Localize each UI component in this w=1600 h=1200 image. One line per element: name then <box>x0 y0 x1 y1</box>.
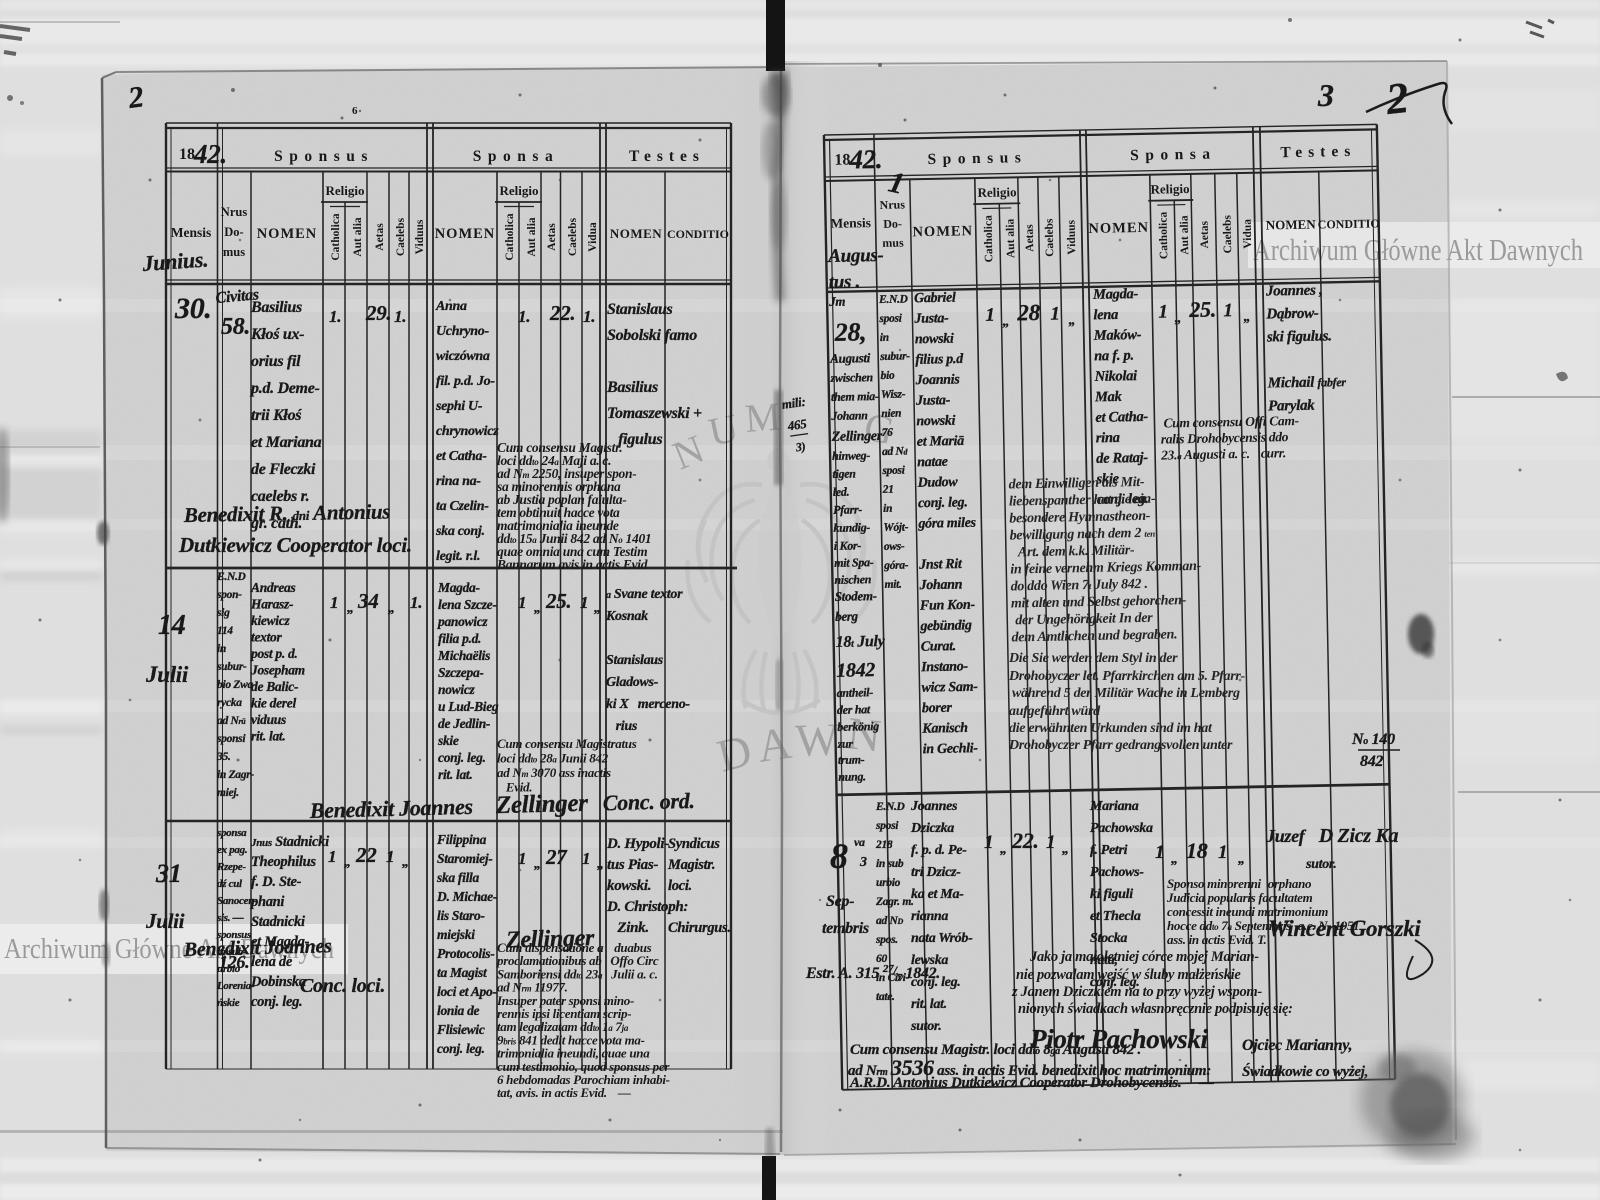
svg-text:in Gechli-: in Gechli- <box>923 741 979 757</box>
svg-text:ki X merceno-: ki X merceno- <box>606 697 690 712</box>
svg-text:bio: bio <box>880 370 895 382</box>
svg-text:rit. lat.: rit. lat. <box>438 767 472 782</box>
svg-text:Catholica: Catholica <box>504 213 516 261</box>
svg-text:„: „ <box>594 601 601 616</box>
svg-text:Sponsus: Sponsus <box>274 148 374 165</box>
svg-text:Maków-: Maków- <box>1093 327 1142 344</box>
svg-text:legit. r.l.: legit. r.l. <box>436 549 480 564</box>
svg-text:nata Wrób-: nata Wrób- <box>911 931 973 946</box>
svg-text:1: 1 <box>1046 832 1055 853</box>
svg-text:ta Czelin-: ta Czelin- <box>436 499 489 514</box>
svg-text:Julii: Julii <box>145 662 189 687</box>
svg-text:Benedixit R. dni Antonius: Benedixit R. dni Antonius <box>183 499 391 527</box>
svg-text:„: „ <box>347 601 354 616</box>
svg-text:Caelebs: Caelebs <box>395 217 407 256</box>
svg-text:Sponsa: Sponsa <box>1130 145 1217 164</box>
svg-text:them mia-: them mia- <box>831 389 879 404</box>
svg-text:1: 1 <box>386 847 394 866</box>
svg-text:Michaëlis: Michaëlis <box>437 648 490 663</box>
svg-text:Stadnicki: Stadnicki <box>251 914 305 930</box>
svg-text:Rzepe-: Rzepe- <box>216 861 246 873</box>
svg-text:Parylak: Parylak <box>1268 398 1315 415</box>
svg-text:Basilius: Basilius <box>606 379 658 396</box>
svg-text:ows-: ows- <box>884 541 905 553</box>
svg-text:borer: borer <box>922 701 953 717</box>
svg-text:Anna: Anna <box>435 299 467 314</box>
svg-text:Ojciec Marianny,: Ojciec Marianny, <box>1242 1037 1352 1054</box>
svg-text:Flisiewic: Flisiewic <box>436 1022 485 1037</box>
svg-text:22: 22 <box>355 843 377 867</box>
svg-text:gebündig: gebündig <box>919 618 972 634</box>
svg-text:Jm: Jm <box>828 294 845 309</box>
svg-text:tembris: tembris <box>822 920 869 937</box>
svg-text:Aetas: Aetas <box>1199 220 1212 248</box>
svg-text:22.: 22. <box>1011 828 1039 853</box>
svg-text:Sponsa: Sponsa <box>473 148 559 165</box>
svg-text:et Mariā: et Mariā <box>917 434 965 450</box>
svg-text:sis. —: sis. — <box>216 912 244 924</box>
svg-text:i Kor-: i Kor- <box>834 538 862 553</box>
svg-text:Basilius: Basilius <box>250 299 302 316</box>
svg-text:„: „ <box>1174 311 1181 326</box>
svg-text:skie: skie <box>437 733 459 748</box>
svg-text:hinweg-: hinweg- <box>832 448 870 463</box>
svg-text:NOMEN: NOMEN <box>1266 217 1317 233</box>
svg-text:Mensis: Mensis <box>171 225 212 240</box>
svg-text:Sponsus: Sponsus <box>927 149 1027 168</box>
svg-text:NOMEN: NOMEN <box>1088 220 1149 237</box>
svg-text:28: 28 <box>1016 300 1041 325</box>
svg-text:Curat.: Curat. <box>921 639 956 655</box>
svg-text:lis Staro-: lis Staro- <box>437 908 485 923</box>
svg-text:kundig-: kundig- <box>833 520 870 535</box>
svg-text:18: 18 <box>834 151 850 168</box>
svg-text:Pachows-: Pachows- <box>1090 865 1144 880</box>
svg-text:„: „ <box>1238 852 1245 867</box>
svg-text:18: 18 <box>179 146 195 163</box>
svg-text:wicz Sam-: wicz Sam- <box>921 680 978 696</box>
svg-text:Junius.: Junius. <box>141 246 209 276</box>
svg-text:miejski: miejski <box>437 927 475 942</box>
svg-text:sposi: sposi <box>878 313 902 325</box>
svg-text:sutor.: sutor. <box>1305 857 1337 872</box>
svg-text:sponsa: sponsa <box>216 827 247 839</box>
svg-text:Aetas: Aetas <box>546 223 558 251</box>
svg-text:Dziczka: Dziczka <box>910 821 954 836</box>
svg-text:de Fleczki: de Fleczki <box>251 461 316 478</box>
svg-text:Michail fabfer: Michail fabfer <box>1267 374 1347 392</box>
svg-text:22.: 22. <box>549 301 575 325</box>
svg-text:„: „ <box>402 855 409 870</box>
svg-text:Theophilus: Theophilus <box>251 854 316 870</box>
svg-text:Augusti: Augusti <box>829 350 871 366</box>
svg-text:Kanisch: Kanisch <box>921 721 968 737</box>
svg-text:ńskie: ńskie <box>217 997 240 1009</box>
svg-text:„: „ <box>597 857 604 872</box>
svg-text:Joannes: Joannes <box>910 799 958 814</box>
svg-text:Augus-: Augus- <box>827 245 884 267</box>
svg-text:114: 114 <box>217 625 233 637</box>
svg-text:8: 8 <box>830 836 848 876</box>
svg-text:Drohobyczer let. Pfarrkirchen: Drohobyczer let. Pfarrkirchen am 5. Pfar… <box>1008 669 1246 684</box>
svg-text:Stodem-: Stodem- <box>835 588 877 604</box>
svg-text:ad Nd: ad Nd <box>882 445 909 458</box>
svg-text:lena: lena <box>1093 307 1118 323</box>
svg-text:ralis Drohobycensis ddo: ralis Drohobycensis ddo <box>1161 429 1289 446</box>
svg-text:conj. leg.: conj. leg. <box>437 1041 485 1056</box>
svg-text:ad ND: ad ND <box>876 915 903 927</box>
svg-text:Joannes ,: Joannes , <box>1265 282 1323 299</box>
svg-text:Mensis: Mensis <box>830 215 871 231</box>
svg-text:ska conj.: ska conj. <box>435 524 485 539</box>
svg-text:1: 1 <box>330 593 338 612</box>
svg-text:25.: 25. <box>545 589 571 613</box>
svg-text:nischen: nischen <box>834 572 871 587</box>
svg-text:fil. p.d. Jo-: fil. p.d. Jo- <box>436 374 495 389</box>
svg-text:Harasz-: Harasz- <box>250 597 294 612</box>
svg-text:miej.: miej. <box>217 787 239 799</box>
svg-text:urbio: urbio <box>876 877 901 889</box>
svg-text:Julii: Julii <box>145 909 185 933</box>
svg-text:1.: 1. <box>410 593 422 612</box>
svg-text:Kosnak: Kosnak <box>605 609 648 624</box>
svg-text:Instano-: Instano- <box>920 659 969 675</box>
svg-text:Andreas: Andreas <box>250 580 295 595</box>
svg-text:1.: 1. <box>583 307 595 326</box>
svg-text:CONDITIO: CONDITIO <box>1318 216 1380 231</box>
svg-text:bewilligung nach dem 2 ten: bewilligung nach dem 2 ten <box>1010 526 1156 544</box>
svg-text:Viduus: Viduus <box>414 219 426 254</box>
svg-text:1842: 1842 <box>836 659 876 682</box>
svg-text:1: 1 <box>328 847 336 866</box>
svg-text:in: in <box>217 643 226 655</box>
svg-text:lonia de: lonia de <box>437 1003 480 1018</box>
svg-text:kiewicz: kiewicz <box>251 613 290 628</box>
svg-text:sposi: sposi <box>875 820 899 832</box>
svg-text:mus: mus <box>882 235 904 249</box>
svg-text:Johann: Johann <box>918 577 962 593</box>
svg-text:Do-: Do- <box>883 217 902 231</box>
svg-text:Lorenia-: Lorenia- <box>216 980 255 992</box>
svg-text:textor: textor <box>251 630 282 645</box>
svg-text:Justa-: Justa- <box>913 311 949 327</box>
svg-text:in: in <box>883 503 892 515</box>
svg-text:Tomaszewski +: Tomaszewski + <box>607 405 702 422</box>
svg-text:Testes: Testes <box>629 148 705 165</box>
svg-text:NOMEN: NOMEN <box>610 226 662 241</box>
svg-text:Caelebs: Caelebs <box>567 217 579 256</box>
svg-text:ad Nrū: ad Nrū <box>217 715 246 727</box>
svg-text:u Lud-Bieg: u Lud-Bieg <box>438 699 499 714</box>
svg-text:et Thecla: et Thecla <box>1090 909 1141 924</box>
svg-text:1: 1 <box>1050 304 1060 325</box>
svg-text:na f. p.: na f. p. <box>1094 348 1134 365</box>
svg-text:„: „ <box>1068 313 1075 328</box>
svg-text:1.: 1. <box>518 307 530 326</box>
svg-text:tigen: tigen <box>832 466 856 480</box>
svg-text:Religio: Religio <box>326 183 365 198</box>
svg-text:Nikolai: Nikolai <box>1093 368 1137 385</box>
svg-text:Nrus: Nrus <box>221 205 248 219</box>
svg-text:kie derel: kie derel <box>251 696 296 711</box>
svg-text:E.N.D: E.N.D <box>878 293 909 306</box>
svg-text:25.: 25. <box>1188 297 1216 323</box>
svg-text:Cum consensu Magistratus: Cum consensu Magistratus <box>497 736 637 751</box>
svg-text:der Ungehörigkeit In der: der Ungehörigkeit In der <box>1015 611 1153 629</box>
svg-text:rina na-: rina na- <box>436 474 481 489</box>
svg-text:Wisz-: Wisz- <box>881 388 906 400</box>
svg-text:21: 21 <box>882 484 894 496</box>
svg-text:phani: phani <box>249 894 284 910</box>
svg-text:Sponso minorenni orphano: Sponso minorenni orphano <box>1167 876 1312 891</box>
svg-text:concessit ineundi matrimonium: concessit ineundi matrimonium <box>1167 904 1328 919</box>
svg-text:30.: 30. <box>174 292 212 325</box>
svg-text:sephi U-: sephi U- <box>435 399 483 414</box>
svg-text:zur: zur <box>836 737 853 751</box>
svg-text:1: 1 <box>582 849 590 868</box>
svg-text:Testes: Testes <box>1280 143 1356 161</box>
svg-text:sponsi: sponsi <box>216 733 246 745</box>
svg-text:27: 27 <box>545 845 568 869</box>
svg-text:in Zagr-: in Zagr- <box>217 769 254 781</box>
svg-text:Catholica: Catholica <box>1157 211 1170 259</box>
svg-text:subur-: subur- <box>216 661 247 673</box>
svg-text:28,: 28, <box>833 317 866 347</box>
svg-text:Dudow: Dudow <box>916 475 958 491</box>
svg-text:Aetas: Aetas <box>374 223 386 251</box>
svg-text:natae: natae <box>917 455 948 471</box>
svg-text:1: 1 <box>1218 842 1227 863</box>
svg-text:1.: 1. <box>394 307 406 326</box>
svg-text:zwischen: zwischen <box>829 370 873 385</box>
svg-text:Sobolski famo: Sobolski famo <box>607 327 697 344</box>
svg-text:mit Spa-: mit Spa- <box>834 555 874 570</box>
svg-text:wiczówna: wiczówna <box>436 349 490 364</box>
svg-text:Die Sie werden dem Styl in der: Die Sie werden dem Styl in der <box>1008 651 1178 666</box>
svg-text:kowski.: kowski. <box>607 878 651 894</box>
svg-text:35.: 35. <box>216 751 230 763</box>
svg-text:rius: rius <box>606 719 638 734</box>
svg-text:nien: nien <box>881 408 901 420</box>
svg-text:D. Christoph:: D. Christoph: <box>606 899 688 915</box>
svg-text:et Catha-: et Catha- <box>1095 409 1148 426</box>
svg-text:rycka: rycka <box>217 697 242 709</box>
svg-text:Pfarr-: Pfarr- <box>833 502 862 517</box>
svg-text:f. D. Ste-: f. D. Ste- <box>251 874 302 890</box>
svg-text:do ddo Wien 7t July 842 .: do ddo Wien 7t July 842 . <box>1010 577 1147 595</box>
svg-text:Zagr. m.: Zagr. m. <box>875 896 914 908</box>
svg-text:besondere Hymnastheon-: besondere Hymnastheon- <box>1009 509 1151 527</box>
svg-text:conj. leg.: conj. leg. <box>438 750 486 765</box>
svg-text:in Civi-: in Civi- <box>876 972 910 984</box>
svg-text:Dobinska: Dobinska <box>250 974 306 990</box>
svg-text:Caelebs: Caelebs <box>1044 218 1057 257</box>
svg-text:ska filla: ska filla <box>436 870 479 885</box>
svg-text:de Balic-: de Balic- <box>251 679 299 694</box>
svg-text:f. p. d. Pe-: f. p. d. Pe- <box>911 843 967 858</box>
svg-text:conj. leg.: conj. leg. <box>918 495 968 511</box>
svg-text:Mak: Mak <box>1094 389 1123 406</box>
svg-text:sposi: sposi <box>881 464 905 476</box>
svg-text:42.: 42. <box>193 139 227 169</box>
svg-text:1: 1 <box>984 832 993 853</box>
svg-text:z Janem Dziczkiem na to przy w: z Janem Dziczkiem na to przy wyżej wspom… <box>1011 984 1262 1000</box>
svg-text:218: 218 <box>875 839 893 851</box>
svg-text:CONDITIO: CONDITIO <box>667 227 729 241</box>
svg-text:„: „ <box>1002 314 1009 329</box>
svg-text:spos.: spos. <box>875 934 898 946</box>
svg-text:Art. dem k.k. Militär-: Art. dem k.k. Militär- <box>1017 543 1135 560</box>
svg-text:18t July: 18t July <box>836 633 886 651</box>
svg-text:Stanislaus: Stanislaus <box>607 301 673 318</box>
svg-text:dem Amtlichen und begraben.: dem Amtlichen und begraben. <box>1011 627 1177 645</box>
svg-text:góra-: góra- <box>883 559 909 571</box>
svg-text:f. Petri: f. Petri <box>1090 843 1128 858</box>
svg-text:Juzef D Zicz Ka: Juzef D Zicz Ka <box>1265 825 1399 847</box>
svg-text:ki figuli: ki figuli <box>1090 887 1133 902</box>
svg-text:trii Kłoś: trii Kłoś <box>251 407 302 424</box>
svg-text:filia p.d.: filia p.d. <box>438 631 481 646</box>
svg-text:Świadkowie co wyżej,: Świadkowie co wyżej, <box>1242 1063 1368 1080</box>
svg-text:„: „ <box>388 601 395 616</box>
svg-text:Judicia popularis facultatem: Judicia popularis facultatem <box>1166 890 1313 905</box>
svg-text:et Catha-: et Catha- <box>436 449 487 464</box>
svg-text:E.N.D: E.N.D <box>875 801 906 813</box>
svg-text:Chirurgus.: Chirurgus. <box>668 920 731 936</box>
svg-text:nung.: nung. <box>838 769 866 784</box>
svg-text:Catholica: Catholica <box>982 215 995 263</box>
svg-text:Zellinger: Zellinger <box>831 429 883 445</box>
svg-text:et Mariana: et Mariana <box>251 434 322 451</box>
svg-text:ka et Ma-: ka et Ma- <box>911 887 964 902</box>
svg-text:Sep-: Sep- <box>826 893 854 910</box>
svg-text:„: „ <box>1062 842 1069 857</box>
svg-text:ass. in actis Evid. T.: ass. in actis Evid. T. <box>1167 932 1267 947</box>
svg-text:conj. leg.: conj. leg. <box>251 994 302 1010</box>
svg-text:Fun Kon-: Fun Kon- <box>919 598 976 614</box>
svg-text:Caelebs: Caelebs <box>1222 214 1235 253</box>
svg-text:nowicz: nowicz <box>438 682 476 697</box>
svg-text:ta Magist: ta Magist <box>437 965 488 980</box>
svg-text:Archiwum Główne Akt Dawnych: Archiwum Główne Akt Dawnych <box>1253 232 1583 267</box>
svg-text:nowski: nowski <box>916 414 955 430</box>
svg-text:Filippina: Filippina <box>436 832 487 847</box>
svg-text:in sub: in sub <box>876 858 904 870</box>
svg-text:1: 1 <box>580 593 588 612</box>
svg-text:lena Szcze-: lena Szcze- <box>438 597 497 612</box>
svg-text:Magda-: Magda- <box>1092 286 1139 303</box>
svg-text:Josepham: Josepham <box>250 663 305 678</box>
svg-text:Johann: Johann <box>830 408 868 423</box>
svg-text:Jnst Rit: Jnst Rit <box>918 557 963 573</box>
svg-text:aufgeführt würd: aufgeführt würd <box>1009 704 1101 719</box>
svg-text:1: 1 <box>985 305 995 326</box>
svg-text:antheil-: antheil- <box>837 685 874 700</box>
svg-text:D. Michae-: D. Michae- <box>436 889 498 904</box>
svg-text:Justa-: Justa- <box>915 393 951 409</box>
svg-text:29.: 29. <box>365 301 391 325</box>
svg-text:Gladows-: Gladows- <box>606 675 659 690</box>
svg-text:ski figulus.: ski figulus. <box>1266 328 1332 345</box>
svg-text:Catholica: Catholica <box>330 213 342 261</box>
svg-text:NOMEN: NOMEN <box>912 223 973 240</box>
svg-text:góra miles: góra miles <box>917 516 976 532</box>
svg-text:orius fil: orius fil <box>251 353 301 370</box>
svg-text:tri Dzicz-: tri Dzicz- <box>911 865 961 880</box>
svg-text:Viduus: Viduus <box>1066 219 1079 254</box>
svg-text:NOMEN: NOMEN <box>257 226 318 242</box>
svg-text:Religio: Religio <box>977 184 1016 200</box>
svg-text:conj. leg.: conj. leg. <box>911 975 961 990</box>
svg-text:während 5 der Militär Wache in: während 5 der Militär Wache in Lemberg <box>1012 686 1240 701</box>
svg-text:subur-: subur- <box>879 350 910 363</box>
svg-text:Do-: Do- <box>224 225 243 239</box>
svg-text:de Jedlin-: de Jedlin- <box>438 716 491 731</box>
svg-text:6: 6 <box>352 105 358 117</box>
svg-text:Dutkiewicz Cooperator loci.: Dutkiewicz Cooperator loci. <box>178 533 412 557</box>
svg-text:Gabriel: Gabriel <box>914 290 956 306</box>
svg-text:1: 1 <box>1158 301 1168 322</box>
svg-text:„: „ <box>534 601 541 616</box>
svg-text:rina: rina <box>1096 430 1120 446</box>
svg-text:trum-: trum- <box>838 752 865 767</box>
svg-text:Staromiej-: Staromiej- <box>437 851 493 866</box>
svg-text:Aut alia: Aut alia <box>352 217 364 257</box>
svg-text:va: va <box>854 835 865 849</box>
svg-text:tate.: tate. <box>876 991 895 1003</box>
svg-text:rianna: rianna <box>911 909 948 924</box>
svg-text:„: „ <box>534 857 541 872</box>
svg-text:Szczepa-: Szczepa- <box>438 665 484 680</box>
svg-text:Stocka: Stocka <box>1090 931 1127 946</box>
svg-text:Cum consensu Offi Cam-: Cum consensu Offi Cam- <box>1163 413 1299 431</box>
svg-text:Aetas: Aetas <box>1024 224 1037 252</box>
svg-text:Syndicus: Syndicus <box>668 836 720 852</box>
svg-text:Zink.: Zink. <box>607 920 649 936</box>
svg-text:3: 3 <box>859 855 867 870</box>
svg-text:Jnus Stadnicki: Jnus Stadnicki <box>250 834 329 850</box>
svg-text:Bannarum avis in actis Evid: Bannarum avis in actis Evid <box>496 557 648 572</box>
svg-text:Kłoś ux-: Kłoś ux- <box>250 326 304 343</box>
svg-text:viduus: viduus <box>251 712 286 727</box>
svg-text:E.N.D: E.N.D <box>216 571 247 583</box>
svg-text:spon-: spon- <box>216 589 242 601</box>
svg-text:A: A <box>754 717 794 772</box>
svg-text:Magda-: Magda- <box>437 580 481 595</box>
svg-text:76: 76 <box>882 427 894 439</box>
svg-text:panowicz: panowicz <box>437 614 488 629</box>
svg-text:Aut alia: Aut alia <box>1179 215 1192 255</box>
svg-text:die erwähnten Urkunden sind im: die erwähnten Urkunden sind im hat <box>1009 721 1213 736</box>
svg-text:842: 842 <box>1360 753 1383 770</box>
svg-text:ex pag.: ex pag. <box>217 844 247 856</box>
svg-text:Protocolis-: Protocolis- <box>437 946 495 961</box>
svg-text:D. Hypoli-: D. Hypoli- <box>606 836 669 852</box>
svg-text:Mariana: Mariana <box>1089 799 1139 814</box>
svg-text:Jako ja małoletniej córce moje: Jako ja małoletniej córce mojej Marian- <box>1029 949 1259 965</box>
svg-text:mus: mus <box>223 245 245 259</box>
svg-text:A.R.D. Antonius Dutkiewicz Coo: A.R.D. Antonius Dutkiewicz Cooperator Dr… <box>849 1075 1214 1091</box>
svg-text:a Svane textor: a Svane textor <box>606 587 683 602</box>
svg-text:loci.: loci. <box>668 878 692 894</box>
svg-text:p.d. Deme-: p.d. Deme- <box>249 380 320 397</box>
svg-text:de Rataj-: de Rataj- <box>1096 450 1148 467</box>
svg-text:34: 34 <box>357 589 378 613</box>
svg-text:NOMEN: NOMEN <box>435 226 496 242</box>
svg-text:in: in <box>880 332 889 344</box>
svg-text:ad Nm 3070 ass inactis: ad Nm 3070 ass inactis <box>497 765 611 780</box>
svg-text:tus .: tus . <box>829 271 861 293</box>
